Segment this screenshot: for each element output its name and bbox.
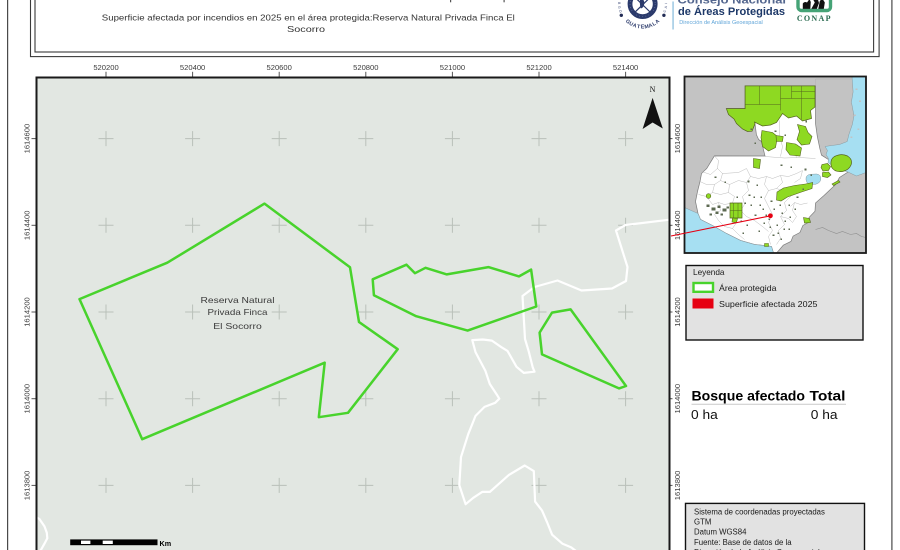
svg-text:Privada Finca: Privada Finca [208, 308, 269, 317]
svg-text:521200: 521200 [526, 63, 551, 72]
svg-text:521000: 521000 [440, 63, 465, 72]
svg-text:520600: 520600 [267, 63, 292, 72]
svg-text:1614200: 1614200 [23, 297, 32, 327]
svg-text:Área protegida: Área protegida [719, 283, 777, 293]
svg-text:1613800: 1613800 [23, 471, 32, 501]
svg-text:Bosque afectado: Bosque afectado [692, 388, 806, 403]
svg-text:El Socorro: El Socorro [213, 322, 262, 331]
svg-text:1614000: 1614000 [673, 384, 682, 414]
svg-text:1614600: 1614600 [23, 124, 32, 154]
svg-text:0 ha: 0 ha [811, 407, 839, 422]
svg-text:N: N [650, 85, 656, 94]
svg-text:520800: 520800 [353, 63, 378, 72]
svg-text:1614200: 1614200 [673, 297, 682, 327]
svg-text:1614000: 1614000 [23, 384, 32, 414]
svg-text:Datum WGS84: Datum WGS84 [694, 528, 747, 537]
svg-text:1614600: 1614600 [673, 124, 682, 154]
svg-text:1614400: 1614400 [23, 211, 32, 241]
svg-text:0 ha: 0 ha [691, 407, 719, 422]
svg-text:521400: 521400 [613, 63, 638, 72]
svg-text:1613800: 1613800 [673, 471, 682, 501]
svg-text:de Áreas Protegidas: de Áreas Protegidas [678, 5, 785, 18]
svg-text:Superficie afectada por incend: Superficie afectada por incendios en 202… [102, 13, 515, 23]
svg-text:Fuente: Base de datos de la: Fuente: Base de datos de la [694, 538, 792, 547]
svg-text:Superficie afectada 2025: Superficie afectada 2025 [719, 300, 818, 309]
svg-text:Socorro: Socorro [287, 24, 325, 34]
svg-text:Km: Km [160, 539, 172, 548]
svg-text:I: I [664, 3, 668, 4]
svg-text:Total: Total [810, 388, 846, 403]
svg-text:Reserva Natural: Reserva Natural [201, 296, 275, 305]
svg-text:CONAP: CONAP [797, 14, 832, 23]
svg-text:520400: 520400 [180, 63, 205, 72]
svg-text:520200: 520200 [93, 63, 118, 72]
svg-text:Leyenda: Leyenda [693, 268, 725, 277]
svg-text:GTM: GTM [694, 518, 711, 527]
svg-text:Dirección de Análisis Geoespac: Dirección de Análisis Geoespacial [679, 20, 763, 26]
svg-text:Sistema de coordenadas proyect: Sistema de coordenadas proyectadas [694, 507, 825, 516]
